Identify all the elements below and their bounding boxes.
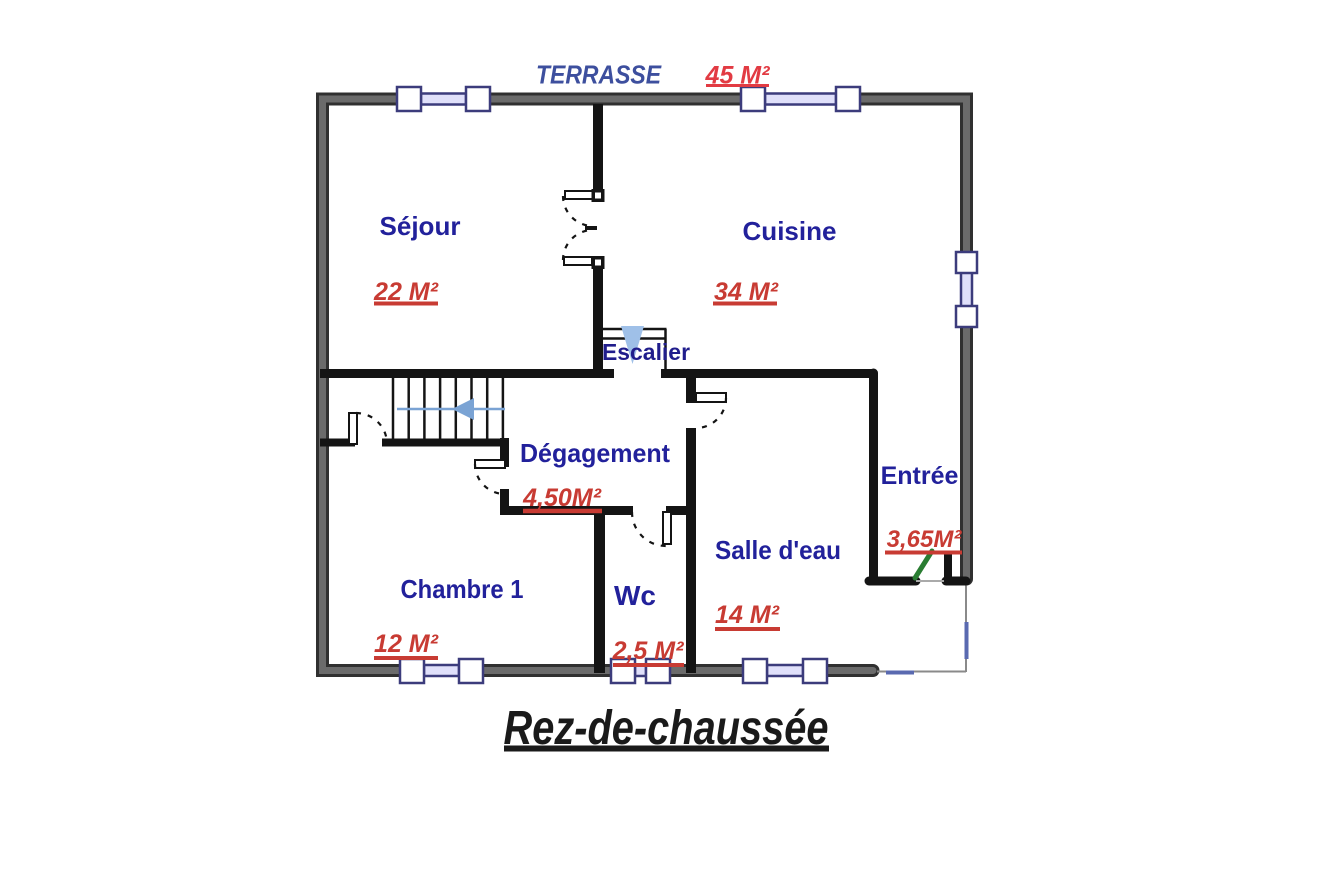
svg-text:Dégagement: Dégagement (520, 438, 670, 468)
svg-text:Séjour: Séjour (380, 211, 461, 241)
svg-text:3,65M²: 3,65M² (887, 526, 963, 553)
svg-text:TERRASSE: TERRASSE (536, 60, 662, 90)
svg-text:Wc: Wc (614, 580, 656, 611)
svg-text:Entrée: Entrée (881, 462, 959, 490)
svg-text:Salle d'eau: Salle d'eau (715, 535, 841, 565)
svg-text:Cuisine: Cuisine (743, 216, 837, 246)
svg-text:4,50M²: 4,50M² (522, 484, 601, 512)
svg-text:Chambre 1: Chambre 1 (401, 574, 524, 604)
svg-text:14 M²: 14 M² (715, 601, 780, 629)
svg-text:12 M²: 12 M² (374, 630, 439, 658)
svg-text:2,5 M²: 2,5 M² (612, 637, 685, 665)
svg-text:Escalier: Escalier (602, 339, 690, 365)
